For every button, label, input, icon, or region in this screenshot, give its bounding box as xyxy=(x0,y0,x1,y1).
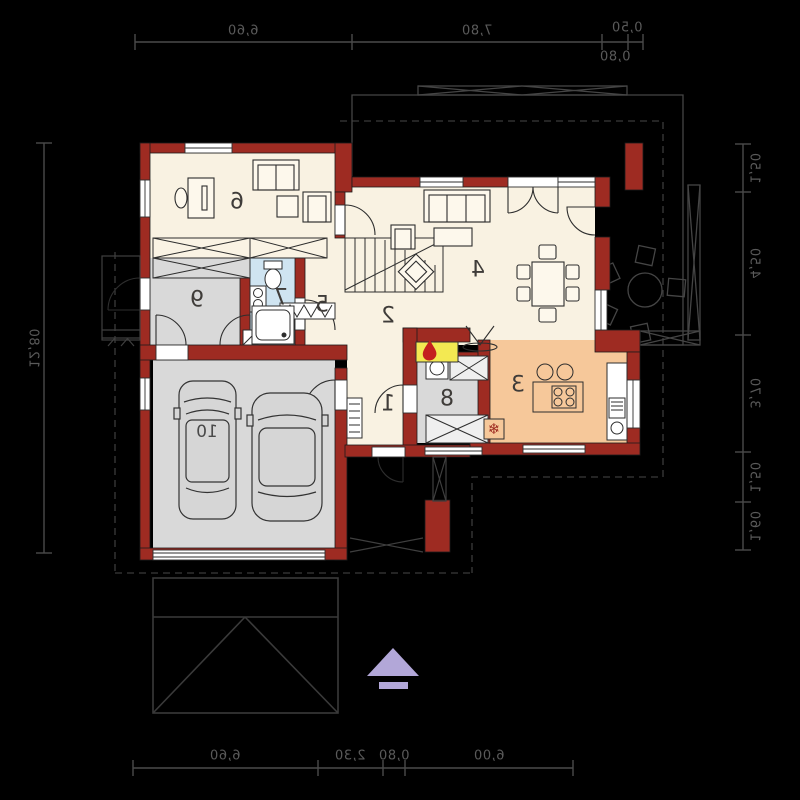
dim-left-1: 12,80 xyxy=(26,328,41,368)
entrance-door xyxy=(378,457,403,482)
dim-bottom-1: 6,60 xyxy=(210,749,241,764)
room-label-8: 8 xyxy=(440,387,454,412)
room-label-6: 6 xyxy=(230,190,244,215)
small-table xyxy=(277,196,298,217)
driveway xyxy=(153,578,338,713)
dim-top-1: 6,60 xyxy=(228,24,259,39)
entrance-arrow-icon xyxy=(367,648,419,689)
car-2 xyxy=(247,393,328,521)
dim-right-1: 1,50 xyxy=(747,153,762,184)
dim-top-4: 0,80 xyxy=(600,50,631,65)
dining-table xyxy=(532,262,564,306)
dim-bottom-3: 0,80 xyxy=(379,749,410,764)
room-label-3: 3 xyxy=(511,373,525,398)
dim-bottom-2: 2,30 xyxy=(335,749,366,764)
dim-top-2: 7,80 xyxy=(462,24,493,39)
porch-door xyxy=(108,278,140,310)
toilet-tank xyxy=(264,261,282,269)
fridge-snowflake-icon: ❄ xyxy=(488,420,501,438)
floor-plan-canvas: ❄ xyxy=(0,0,800,800)
fireplace xyxy=(416,340,458,362)
room-label-9: 9 xyxy=(190,288,204,313)
dim-right-2: 4,50 xyxy=(747,248,762,279)
pergola-beam-top xyxy=(418,86,627,95)
room-label-10: 10 xyxy=(196,422,218,442)
room-label-2: 2 xyxy=(381,304,395,329)
room-label-5: 5 xyxy=(315,293,329,318)
room-label-4: 4 xyxy=(471,258,485,283)
room-label-7: 7 xyxy=(274,286,288,311)
dim-top-3: 0,50 xyxy=(612,21,643,36)
dim-right-3: 3,70 xyxy=(747,378,762,409)
dim-right-5: 1,60 xyxy=(747,511,762,542)
coffee-table xyxy=(434,228,472,246)
floor-plan-drawing: ❄ xyxy=(0,0,800,800)
west-porch xyxy=(102,256,140,346)
desk-chair xyxy=(175,188,187,208)
monitor xyxy=(202,186,207,210)
dim-bottom-4: 6,00 xyxy=(474,749,505,764)
desk xyxy=(188,178,214,218)
dim-right-4: 1,50 xyxy=(747,462,762,493)
room-label-1: 1 xyxy=(381,392,395,417)
terrace-round-table xyxy=(628,273,662,307)
car-1 xyxy=(174,381,241,519)
